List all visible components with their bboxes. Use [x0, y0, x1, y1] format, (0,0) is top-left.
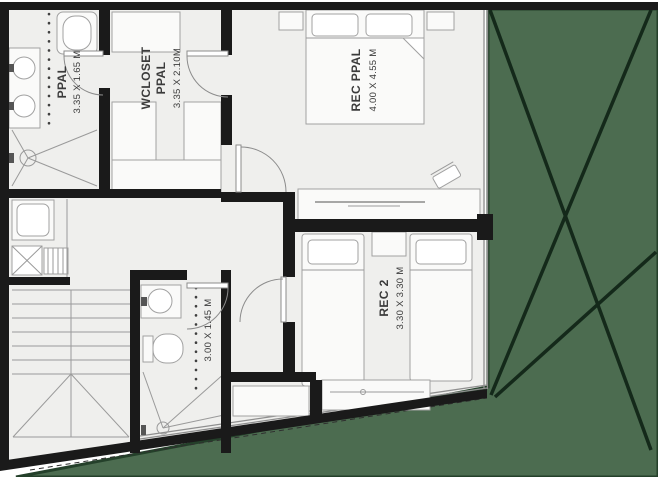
sink-basin [13, 57, 35, 79]
pillow [312, 14, 358, 36]
room-name: REC 2 [377, 279, 391, 316]
room-dims: 4.00 X 4.55 M [368, 48, 379, 111]
sink-basin [148, 289, 172, 313]
floor-plan-svg: PPAL 3.35 X 1.65 M WCLOSET PPAL 3.35 X 2… [0, 0, 658, 477]
nightstand-icon [427, 12, 454, 30]
room-name: REC PPAL [349, 49, 363, 112]
shower-head [141, 425, 146, 435]
door-leaf [64, 51, 103, 56]
room-name: WCLOSET [139, 46, 153, 109]
toilet-icon [153, 334, 183, 363]
closet-shelves-icon [112, 12, 180, 52]
door-leaf [187, 51, 228, 56]
nightstand-icon [279, 12, 303, 30]
shower-head [9, 153, 14, 163]
sink-basin [13, 95, 35, 117]
room-dims: 3.00 X 1.45 M [203, 298, 214, 361]
closet-icon [233, 386, 309, 416]
room-dims: 3.35 X 2.10M [172, 48, 183, 108]
faucet [9, 64, 14, 72]
room-name: PPAL [55, 66, 69, 99]
dresser-icon [298, 189, 480, 220]
pillow [308, 240, 358, 264]
door-leaf [236, 145, 241, 192]
pillow [366, 14, 412, 36]
door-leaf [281, 277, 286, 322]
faucet [9, 102, 14, 110]
room-dims: 3.35 X 1.65 M [72, 50, 83, 113]
water-heater-icon [12, 246, 42, 275]
pillow [416, 240, 466, 264]
door-leaf [187, 283, 228, 288]
toilet-icon [143, 336, 153, 362]
floor-plan-page: PPAL 3.35 X 1.65 M WCLOSET PPAL 3.35 X 2… [0, 0, 658, 477]
faucet [141, 297, 147, 306]
room-dims: 3.30 X 3.30 M [395, 266, 406, 329]
louver-door-icon [44, 248, 68, 274]
room-name: PPAL [154, 62, 168, 95]
nightstand-icon [372, 232, 406, 256]
